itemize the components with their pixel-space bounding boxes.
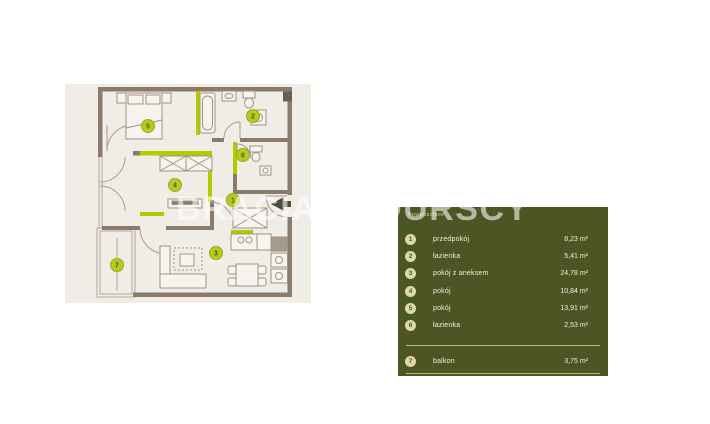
wall-notch bbox=[283, 92, 292, 102]
svg-text:4: 4 bbox=[173, 182, 177, 189]
room-number-badge: 6 bbox=[405, 320, 416, 331]
legend-divider bbox=[406, 345, 600, 346]
legend-bottom-divider bbox=[406, 373, 600, 374]
legend-extra-rows: 7balkon3,75 m² bbox=[398, 353, 608, 370]
toilet bbox=[250, 146, 262, 152]
nightstand bbox=[162, 93, 171, 103]
room-label: pokój bbox=[433, 305, 451, 312]
legend-row: 2łazienka5,41 m² bbox=[398, 248, 608, 265]
appliance-column bbox=[271, 237, 288, 283]
legend-row: 3pokój z aneksem24,78 m² bbox=[398, 265, 608, 282]
room-area: 3,75 m² bbox=[564, 358, 588, 365]
room-marker: 5 bbox=[142, 120, 155, 133]
kitchen-counter bbox=[231, 234, 271, 250]
room-marker: 7 bbox=[111, 259, 124, 272]
svg-text:7: 7 bbox=[115, 262, 119, 269]
dining-table bbox=[236, 264, 258, 286]
chair bbox=[228, 266, 236, 274]
page: 1234567 BRACIA SADURSCY Powierzchnie 1pr… bbox=[0, 0, 710, 424]
room-marker: 6 bbox=[237, 149, 250, 162]
svg-text:2: 2 bbox=[251, 113, 255, 120]
chair bbox=[258, 278, 266, 286]
room-number-badge: 5 bbox=[405, 303, 416, 314]
coffee-table bbox=[180, 254, 194, 266]
room-marker: 3 bbox=[210, 247, 223, 260]
legend-panel: Powierzchnie 1przedpokój8,23 m²2łazienka… bbox=[398, 207, 608, 376]
room-area: 5,41 m² bbox=[564, 253, 588, 260]
legend-row: 6łazienka2,53 m² bbox=[398, 317, 608, 334]
room-number-badge: 4 bbox=[405, 286, 416, 297]
room-area: 2,53 m² bbox=[564, 322, 588, 329]
svg-text:6: 6 bbox=[241, 152, 245, 159]
room-label: przedpokój bbox=[433, 236, 469, 243]
chair bbox=[258, 266, 266, 274]
legend-row: 1przedpokój8,23 m² bbox=[398, 231, 608, 248]
room-area: 13,91 m² bbox=[560, 305, 588, 312]
room-label: balkon bbox=[433, 358, 455, 365]
legend-row: 4pokój10,84 m² bbox=[398, 283, 608, 300]
chair bbox=[228, 278, 236, 286]
room-area: 10,84 m² bbox=[560, 288, 588, 295]
wardrobe bbox=[160, 156, 212, 171]
room-number-badge: 2 bbox=[405, 251, 416, 262]
nightstand bbox=[117, 93, 126, 103]
svg-text:5: 5 bbox=[146, 123, 150, 130]
legend-row: 5pokój13,91 m² bbox=[398, 300, 608, 317]
legend-row: 7balkon3,75 m² bbox=[398, 353, 608, 370]
room-label: łazienka bbox=[433, 253, 460, 260]
watermark: BRACIA SADURSCY bbox=[176, 190, 530, 229]
room-label: pokój bbox=[433, 288, 451, 295]
room-number-badge: 3 bbox=[405, 268, 416, 279]
room-number-badge: 7 bbox=[405, 356, 416, 367]
room-marker: 2 bbox=[247, 110, 260, 123]
room-number-badge: 1 bbox=[405, 234, 416, 245]
room-label: pokój z aneksem bbox=[433, 270, 489, 277]
toilet bbox=[243, 91, 255, 98]
room-area: 24,78 m² bbox=[560, 270, 588, 277]
svg-text:3: 3 bbox=[214, 250, 218, 257]
room-label: łazienka bbox=[433, 322, 460, 329]
room-area: 8,23 m² bbox=[564, 236, 588, 243]
